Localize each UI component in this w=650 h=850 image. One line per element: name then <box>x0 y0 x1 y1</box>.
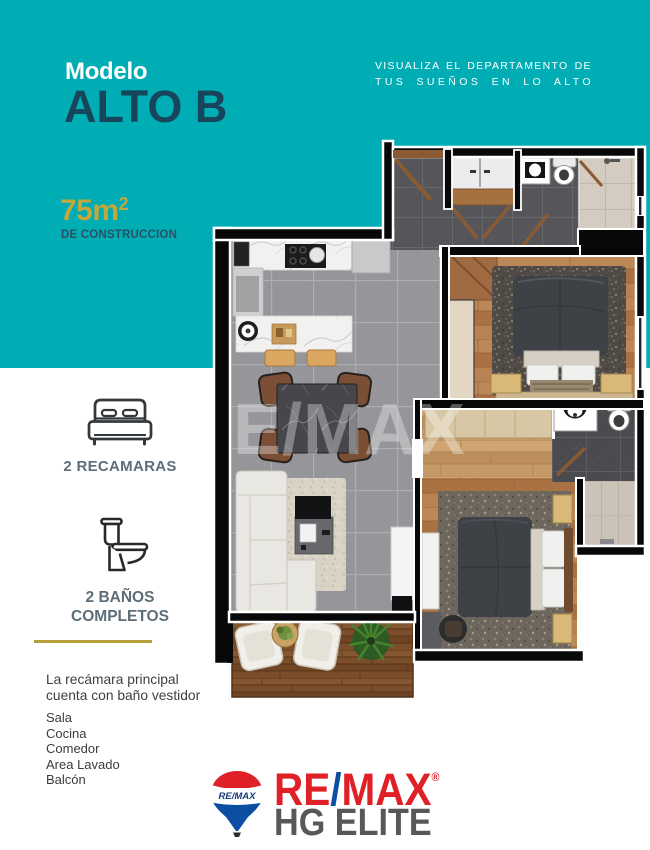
svg-text:E/MAX: E/MAX <box>233 390 466 470</box>
svg-text:RE/MAX: RE/MAX <box>219 791 257 802</box>
